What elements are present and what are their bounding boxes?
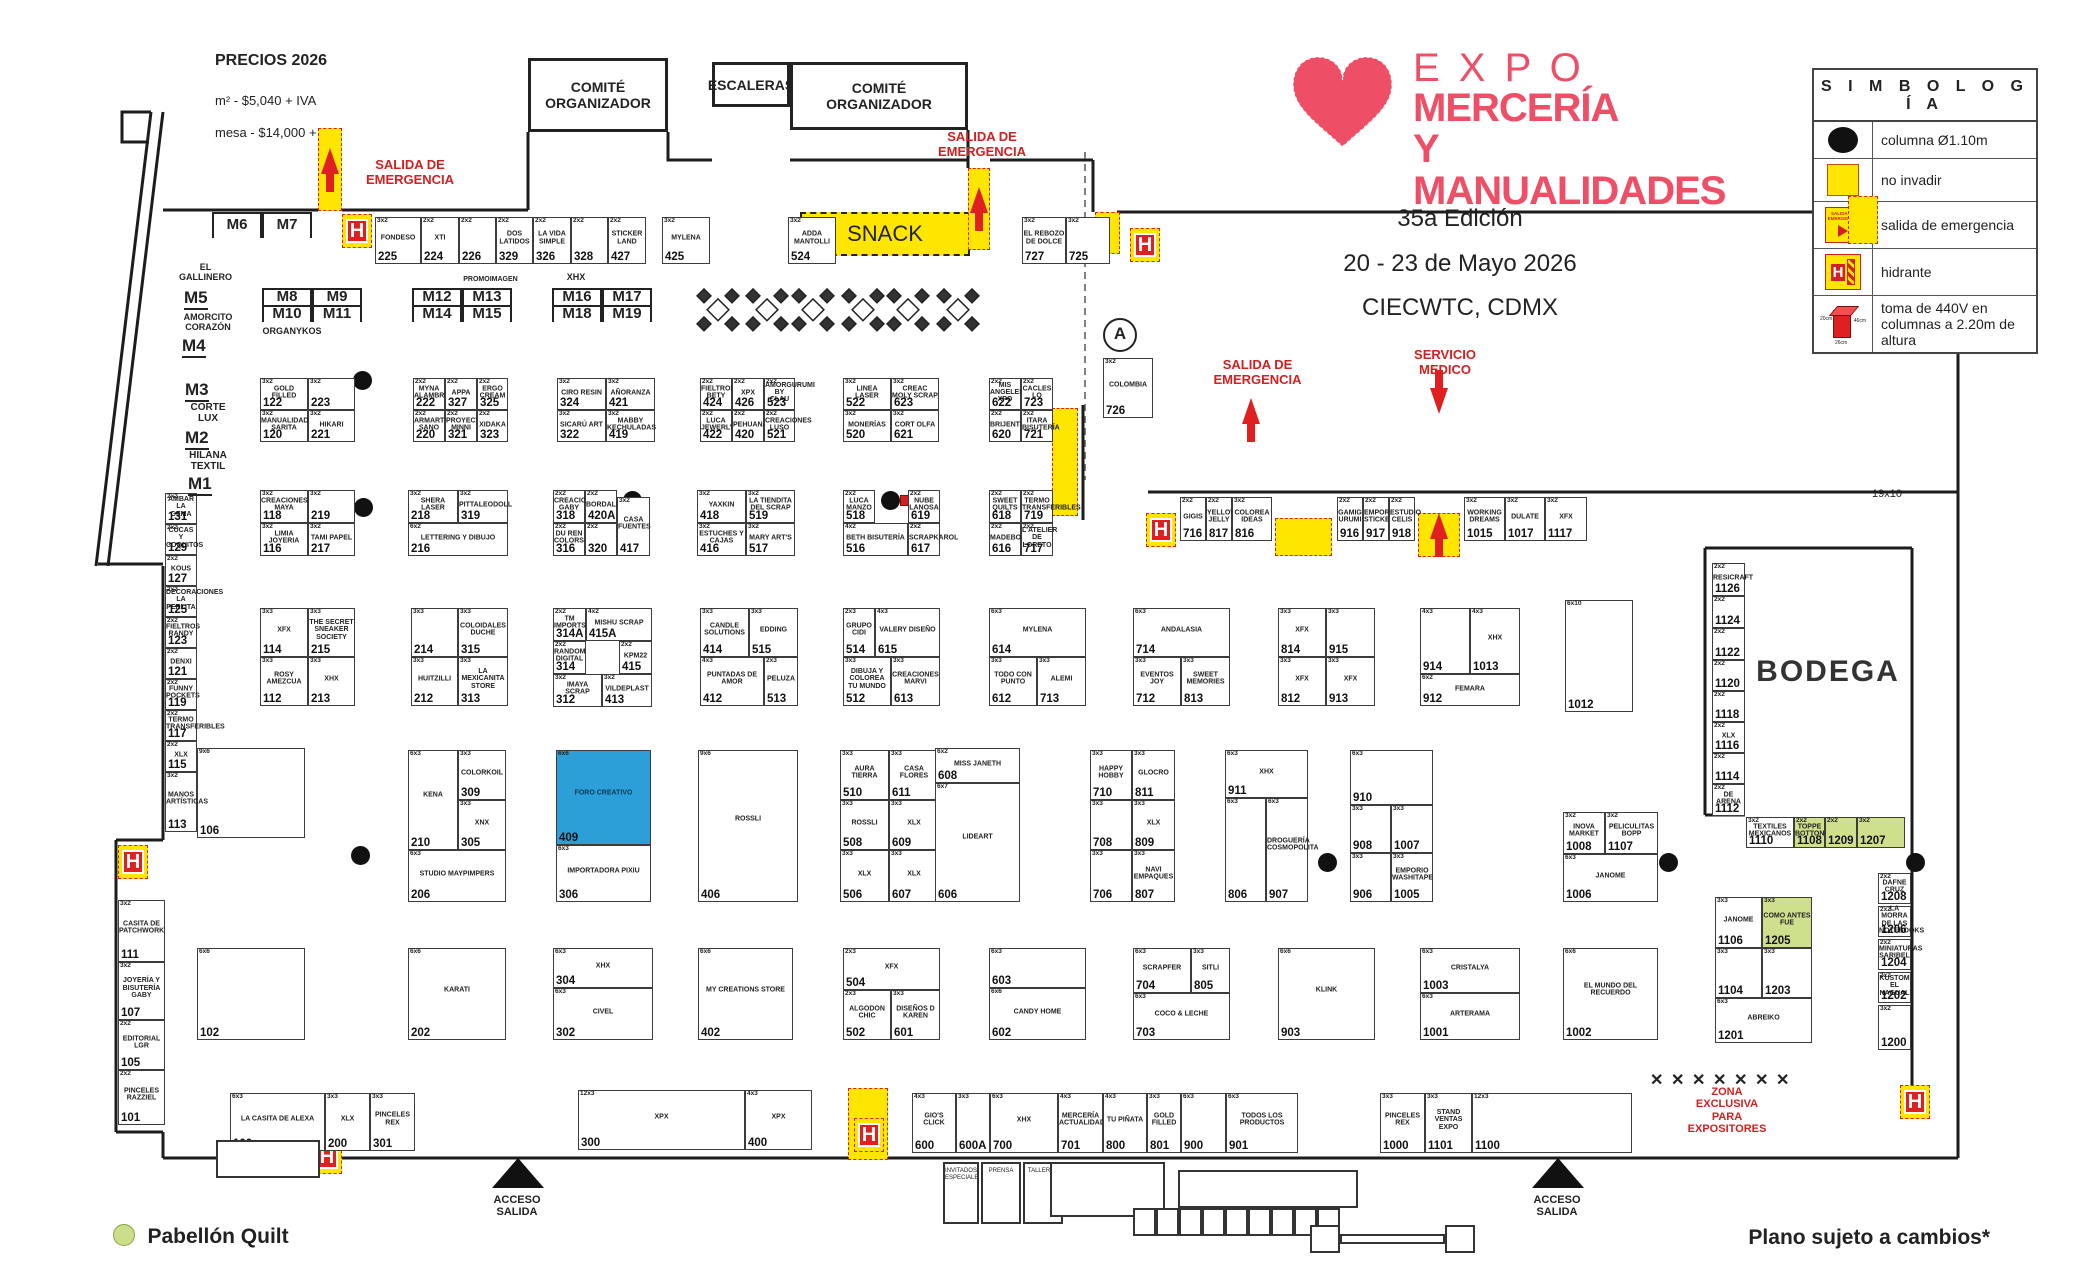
- booth-number: 523: [767, 398, 786, 410]
- booth-number: 613: [894, 694, 913, 706]
- booth-813: 3x3SWEET MEMORIES813: [1181, 657, 1230, 706]
- hydrant-letter: H: [1134, 233, 1156, 257]
- table-m8: M8: [262, 288, 312, 305]
- booth-number: 726: [1106, 406, 1125, 418]
- booth-number: 1015: [1467, 529, 1493, 541]
- booth-number: 708: [1093, 838, 1112, 850]
- booth-1203: 3x31203: [1762, 948, 1812, 998]
- booth-name: EDDING: [750, 626, 797, 633]
- booth-716: 2x2GIGIS716: [1180, 497, 1206, 541]
- booth-809: 3x3XLX809: [1132, 800, 1175, 850]
- booth-number: 621: [894, 430, 913, 442]
- booth-1204: 2x2MINIATURAS SARIBEL1204: [1878, 939, 1911, 970]
- booth-number: 603: [992, 976, 1011, 988]
- booth-number: 706: [1093, 890, 1112, 902]
- booth-number: 424: [703, 398, 722, 410]
- booth-125: 2x2DECORACIONES LA PERLITA125: [165, 586, 197, 617]
- booth-421: 3x2AÑORANZA421: [606, 378, 655, 410]
- booth-313: 3x3LA MEXICANITA STORE313: [458, 657, 508, 706]
- booth-number: 101: [121, 1113, 140, 1125]
- booth-number: 1107: [1608, 842, 1633, 854]
- booth-number: 710: [1093, 788, 1112, 800]
- booth-name: ARTERAMA: [1421, 1011, 1519, 1018]
- pabellon-quilt-label: Pabellón Quilt: [147, 1225, 288, 1248]
- booth-1114: 2x21114: [1712, 753, 1745, 784]
- booth-size: 3x2: [1466, 498, 1477, 505]
- x-table-icon: ✕: [1734, 1072, 1747, 1090]
- booth-1015: 3x2WORKING DREAMS1015: [1464, 497, 1505, 541]
- room-comité: COMITÉ ORGANIZADOR: [790, 62, 968, 130]
- booth-number: 1005: [1394, 890, 1420, 902]
- booth-number: 704: [1136, 981, 1155, 993]
- booth-119: 2x2FUNNY POCKETS119: [165, 679, 197, 710]
- booth-name: CIVEL: [554, 1008, 652, 1015]
- booth-326: 2x2LA VIDA SIMPLE326: [533, 217, 571, 264]
- booth-129: 2x2CUCAS Y COQUITOS129: [165, 524, 197, 555]
- booth-name: VALERY DISEÑO: [876, 626, 939, 633]
- booth-size: 6x3: [1268, 799, 1279, 806]
- booth-name: ROSSLI: [841, 819, 888, 826]
- booth-size: 3x3: [842, 801, 853, 808]
- booth-name: XPX: [746, 1113, 811, 1120]
- label-xhx: XHX: [556, 272, 596, 282]
- booth-number: 520: [846, 430, 865, 442]
- booth-number: 1203: [1765, 986, 1791, 998]
- booth-number: 619: [911, 511, 930, 523]
- booth-number: 329: [499, 252, 518, 264]
- booth-number: 412: [703, 694, 722, 706]
- booth-size: 6x3: [1135, 949, 1146, 956]
- booth-number: 912: [1423, 694, 1442, 706]
- booth-size: 3x3: [1183, 658, 1194, 665]
- booth-size: 3x2: [699, 524, 710, 531]
- booth-size: 3x3: [842, 751, 853, 758]
- table-m13: M13: [462, 288, 512, 305]
- booth-size: 2x2: [498, 218, 509, 225]
- booth-523: 2x2AMORGURUMI BY CLAU523: [764, 378, 795, 410]
- booth-size: 6x3: [558, 846, 569, 853]
- no-invadir-zone: [1848, 196, 1878, 244]
- booth-number: 513: [767, 694, 786, 706]
- pricing-line1: m² - $5,040 + IVA: [215, 94, 475, 109]
- wall-segment: [96, 112, 151, 566]
- booth-number: 809: [1135, 838, 1154, 850]
- booth-size: 3x3: [891, 751, 902, 758]
- x-table-icon: ✕: [1692, 1072, 1705, 1090]
- booth-name: XTI: [422, 235, 458, 242]
- booth-806: 6x3806: [1225, 798, 1266, 902]
- booth-214: 3x3214: [411, 608, 458, 657]
- booth-size: 3x3: [262, 609, 273, 616]
- booth-number: 214: [414, 645, 433, 657]
- booth-number: 801: [1150, 1141, 1169, 1153]
- booth-416: 3x2ESTUCHES Y CAJAS416: [697, 523, 746, 556]
- booth-name: YAXKIN: [698, 501, 745, 508]
- booth-number: 415: [622, 662, 641, 674]
- booth-number: 421: [609, 398, 628, 410]
- booth-name: CANDLE SOLUTIONS: [701, 623, 748, 638]
- booth-name: XIDAKA: [478, 421, 507, 428]
- column-icon: [1659, 853, 1678, 872]
- hydrant-icon: H: [1825, 254, 1861, 290]
- column-icon: [354, 498, 373, 517]
- booth-size: 3x2: [748, 491, 759, 498]
- booth-number: 112: [263, 694, 282, 706]
- booth-600A: 3x3600A: [956, 1093, 990, 1153]
- booth-name: DIBUJA Y COLOREA TU MUNDO: [844, 668, 890, 690]
- booth-number: 1106: [1718, 936, 1743, 948]
- booth-number: 217: [311, 544, 330, 556]
- booth-714: 6x3ANDALASIA714: [1133, 608, 1230, 657]
- booth-size: 2x2: [555, 642, 566, 649]
- label-salida-de: SALIDA DE EMERGENCIA: [360, 158, 460, 187]
- booth-814: 3x3XFX814: [1278, 608, 1326, 657]
- booth-117: 2x2TERMO TRANSFERIBLES117: [165, 710, 197, 741]
- booth-number: 816: [1235, 529, 1254, 541]
- booth-size: 3x3: [751, 609, 762, 616]
- booth-number: 1208: [1881, 892, 1907, 904]
- booth-name: BORDALE: [586, 501, 616, 508]
- booth-name: LA MEXICANITA STORE: [459, 668, 507, 690]
- booth-number: 218: [411, 511, 430, 523]
- booth-number: 606: [938, 890, 957, 902]
- booth-number: 102: [200, 1028, 219, 1040]
- booth-600: 4x3GIO'S CLICK600: [912, 1093, 956, 1153]
- label-salida-de: SALIDA DE EMERGENCIA: [922, 130, 1042, 159]
- booth-size: 3x3: [1135, 658, 1146, 665]
- booth-409: 6x6FORO CREATIVO409: [556, 750, 651, 845]
- booth-name: GIGIS: [1181, 513, 1205, 520]
- booth-number: 1206: [1881, 925, 1907, 937]
- booth-number: 811: [1135, 788, 1154, 800]
- booth-number: 1126: [1715, 584, 1740, 596]
- booth-1101: 3x3STAND VENTAS EXPO1101: [1425, 1093, 1472, 1153]
- booth-907: 6x3DROGUERÍA COSMOPOLITA907: [1266, 798, 1308, 902]
- booth-226: 2x2226: [459, 217, 496, 264]
- table-m10: M10: [262, 305, 312, 322]
- booth-427: 2x2STICKER LAND427: [608, 217, 646, 264]
- booth-size: 3x2: [377, 218, 388, 225]
- booth-name: JOYERÍA Y BISUTERÍA GABY: [119, 977, 164, 999]
- booth-300: 12x3XPX300: [578, 1090, 745, 1150]
- booth-212: 3x3HUITZILLI212: [411, 657, 458, 706]
- column-icon: [353, 371, 372, 390]
- booth-name: COLOMBIA: [1104, 381, 1152, 388]
- caja-cell: [1133, 1208, 1156, 1236]
- booth-number: 1205: [1765, 936, 1791, 948]
- booth-906: 3x3906: [1350, 853, 1391, 902]
- booth-916: 2x2GAMIG URUMI916: [1337, 497, 1363, 541]
- booth-size: 4x3: [877, 609, 888, 616]
- booth-1104: 3x31104: [1715, 948, 1762, 998]
- booth-609: 3x3XLX609: [889, 800, 939, 850]
- booth-size: 3x3: [1193, 949, 1204, 956]
- legend-text: hidrante: [1873, 260, 1940, 284]
- booth-number: 717: [1024, 544, 1043, 556]
- booth-number: 524: [791, 252, 810, 264]
- booth-number: 118: [263, 511, 282, 523]
- booth-size: 3x2: [1880, 1006, 1891, 1013]
- booth-size: 3x2: [559, 411, 570, 418]
- x-table-icon: ✕: [1713, 1072, 1726, 1090]
- booth-1100: 12x31100: [1472, 1093, 1632, 1153]
- booth-size: 2x2: [991, 411, 1002, 418]
- booth-size: 3x3: [460, 801, 471, 808]
- booth-number: 508: [843, 838, 862, 850]
- booth-320: 2x2320: [585, 523, 617, 556]
- hydrant-letter: H: [346, 219, 368, 243]
- booth-426: 2x2XPX426: [732, 378, 764, 410]
- booth-620: 2x2BRIJENTO620: [989, 410, 1021, 442]
- booth-1201: 6x3ABREIKO1201: [1715, 998, 1812, 1043]
- booth-size: 3x3: [460, 609, 471, 616]
- booth-name: JANOME: [1564, 872, 1657, 879]
- booth-number: 514: [846, 645, 865, 657]
- booth-306: 6x3IMPORTADORA PIXIU306: [556, 845, 651, 902]
- wall-segment: [108, 112, 163, 566]
- booth-number: 611: [892, 788, 911, 800]
- booth-1117: 3x2XFX1117: [1545, 497, 1587, 541]
- booth-817: 2x2YELLOW JELLY817: [1206, 497, 1232, 541]
- booth-305: 3x3XNX305: [458, 800, 506, 850]
- booth-size: 6x3: [410, 751, 421, 758]
- booth-1118: 2x21118: [1712, 691, 1745, 722]
- booth-329: 2x2DOS LATIDOS329: [496, 217, 533, 264]
- booth-611: 3x3CASA FLORES611: [889, 750, 939, 800]
- booth-912: 6x2FEMARA912: [1420, 674, 1520, 706]
- booth-319: 3x2PITTALEODOLL319: [458, 490, 508, 523]
- booth-314A: 2x2TM IMPORTS314A: [553, 608, 586, 641]
- booth-size: 3x2: [1234, 498, 1245, 505]
- booth-419: 3x2MABBY KECHULADAS419: [606, 410, 655, 442]
- booth-number: 1204: [1881, 958, 1907, 970]
- booth-811: 3x3GLOCRO811: [1132, 750, 1175, 800]
- booth-size: 3x2: [167, 773, 178, 780]
- booth-508: 3x3ROSSLI508: [840, 800, 889, 850]
- booth-size: 3x2: [559, 379, 570, 386]
- booth-name: ROSSLI: [699, 815, 797, 822]
- booth-size: 3x3: [991, 658, 1002, 665]
- booth-number: 900: [1184, 1141, 1203, 1153]
- legend-text: salida de emergencia: [1873, 213, 2022, 237]
- diamond-table-icon: [697, 289, 739, 331]
- booth-size: 6x10: [1567, 601, 1581, 608]
- booth-number: 326: [536, 252, 555, 264]
- booth-name: XLX: [326, 1116, 369, 1123]
- booth-618: 2x2SWEET QUILTS618: [989, 490, 1021, 523]
- booth-name: DENXI: [166, 658, 196, 665]
- booth-415: 2x2KPM22415: [619, 641, 652, 674]
- medical-arrow-icon: [1430, 388, 1448, 414]
- booth-number: 314: [556, 662, 575, 674]
- booth-name: CASA FLORES: [890, 765, 938, 780]
- booth-size: 3x3: [1134, 801, 1145, 808]
- booth-522: 3x2LINEA LASER522: [843, 378, 891, 410]
- booth-210: 6x3KENA210: [408, 750, 458, 850]
- booth-number: 813: [1184, 694, 1203, 706]
- booth-602: 6x6CANDY HOME602: [989, 988, 1086, 1040]
- booth-321: 2x2PROYECTO MINNI321: [445, 410, 477, 442]
- booth-name: STICKER LAND: [609, 231, 645, 246]
- booth-710: 3x3HAPPY HOBBY710: [1090, 750, 1132, 800]
- booth-1007: 3x31007: [1391, 805, 1433, 853]
- booth-size: 3x2: [310, 491, 321, 498]
- booth-size: 2x2: [120, 1021, 131, 1028]
- booth-name: ABREIKO: [1716, 1015, 1811, 1022]
- booth-1003: 6x3CRISTALYA1003: [1420, 948, 1520, 993]
- booth-size: 2x2: [610, 218, 621, 225]
- booth-116: 3x2LIMIA JOYERIA116: [260, 523, 308, 556]
- booth-807: 3x3NAVI EMPAQUES807: [1132, 850, 1175, 902]
- caja-cell: [1156, 1208, 1179, 1236]
- wall-segment: [668, 132, 712, 160]
- booth-413: 3x2VILDEPLAST413: [602, 674, 652, 707]
- label-m2: M2: [185, 428, 209, 450]
- booth-name: XHX: [1471, 634, 1519, 641]
- booth-size: 3x2: [619, 498, 630, 505]
- booth-number: 413: [605, 695, 624, 707]
- booth-size: 3x3: [310, 658, 321, 665]
- booth-name: KLINK: [1279, 986, 1374, 993]
- booth-913: 3x3XFX913: [1326, 657, 1375, 706]
- booth-name: COLOREA IDEAS: [1233, 510, 1271, 525]
- hydrant-icon: H: [1900, 1085, 1930, 1119]
- booth-number: 419: [609, 430, 628, 442]
- booth-number: 301: [373, 1139, 392, 1151]
- booth-name: CASA FUENTES: [618, 516, 649, 531]
- booth-number: 620: [992, 430, 1011, 442]
- booth-size: 2x2: [1714, 564, 1725, 571]
- booth-name: XFX: [844, 963, 939, 970]
- booth-607: 3x3XLX607: [889, 850, 939, 902]
- booth-number: 617: [911, 544, 930, 556]
- booth-721: 2x2ITARA BISUTERÍA721: [1021, 410, 1053, 442]
- booth-name: JANOME: [1716, 916, 1761, 923]
- table-m11: M11: [312, 305, 362, 322]
- booth-name: SICARÚ ART: [558, 421, 605, 428]
- booth-name: BETH BISUTERÍA: [844, 534, 907, 541]
- booth-number: 212: [414, 694, 433, 706]
- booth-621: 3x2CORT OLFA621: [891, 410, 939, 442]
- column-icon: [1906, 853, 1925, 872]
- booth-name: DULATE: [1506, 513, 1544, 520]
- table-m18: M18: [552, 305, 602, 322]
- booth-number: 426: [735, 398, 754, 410]
- booth-713: 3x3ALEMI713: [1037, 657, 1086, 706]
- booth-number: 1104: [1718, 986, 1743, 998]
- booth-name: CRISTALYA: [1421, 965, 1519, 972]
- booth-size: 3x3: [1764, 898, 1775, 905]
- booth-name: EL MUNDO DEL RECUERDO: [1564, 982, 1657, 997]
- booth-number: 600: [915, 1141, 934, 1153]
- booth-name: PINCELES RAZZIEL: [119, 1088, 164, 1103]
- booth-number: 1202: [1881, 991, 1907, 1003]
- pabellon-quilt-key: Pabellón Quilt: [113, 1224, 289, 1249]
- booth-1000: 3x3PINCELES REX1000: [1380, 1093, 1425, 1153]
- booth-size: 2x2: [120, 1071, 131, 1078]
- booth-size: 4x3: [1422, 609, 1433, 616]
- floor-plan: PRECIOS 2026 m² - $5,040 + IVA mesa - $1…: [0, 0, 2100, 1275]
- booth-name: XLX: [890, 819, 938, 826]
- booth-size: 3x3: [1092, 851, 1103, 858]
- booth-number: 725: [1069, 252, 1088, 264]
- booth-601: 3x3DISEÑOS D KAREN601: [891, 990, 940, 1040]
- label-m1: M1: [188, 474, 212, 496]
- x-table-icon: ✕: [1650, 1072, 1663, 1090]
- booth-number: 316: [556, 544, 575, 556]
- booth-301: 3x3PINCELES REX301: [370, 1093, 415, 1151]
- booth-number: 701: [1061, 1141, 1080, 1153]
- booth-417: 3x2CASA FUENTES417: [617, 497, 650, 556]
- booth-name: XLX: [166, 751, 196, 758]
- booth-size: 6x3: [1352, 751, 1363, 758]
- booth-number: 402: [701, 1028, 720, 1040]
- booth-220: 2x2ARMARTE SANO220: [413, 410, 445, 442]
- label-acceso: ACCESO SALIDA: [482, 1194, 552, 1219]
- booth-701: 4x3MERCERÍA ACTUALIDAD701: [1058, 1093, 1103, 1153]
- booth-size: 6x3: [410, 851, 421, 858]
- booth-number: 127: [168, 574, 187, 586]
- booth-size: 3x3: [1149, 1094, 1160, 1101]
- booth-size: 3x3: [262, 658, 273, 665]
- no-invadir-zone: [1275, 518, 1332, 556]
- booth-name: DOS LATIDOS: [497, 231, 532, 246]
- booth-size: 3x2: [699, 491, 710, 498]
- booth-number: 125: [168, 605, 187, 617]
- booth-504: 2x3XFX504: [843, 948, 940, 990]
- booth-623: 3x2CREAC MOLY SCRAP623: [891, 378, 939, 410]
- booth-number: 306: [559, 890, 578, 902]
- booth-number: 805: [1194, 981, 1213, 993]
- booth-name: EMPORI STICKERS: [1364, 510, 1388, 525]
- booth-size: 3x3: [1764, 949, 1775, 956]
- booth-size: 6x3: [555, 989, 566, 996]
- booth-name: HUITZILLI: [412, 675, 457, 682]
- booth-number: 309: [461, 788, 480, 800]
- table-m15: M15: [462, 305, 512, 322]
- booth-521: 2x2CREACIONES LUSO521: [764, 410, 795, 442]
- booth-number: 313: [461, 694, 480, 706]
- booth-size: 3x3: [413, 658, 424, 665]
- booth-size: 3x2: [1068, 218, 1079, 225]
- booth-size: 4x3: [914, 1094, 925, 1101]
- booth-name: TAMI PAPEL: [309, 534, 354, 541]
- booth-number: 420: [735, 430, 754, 442]
- label-m3: M3: [185, 380, 209, 402]
- booth-number: 116: [263, 544, 282, 556]
- booth-number: 220: [416, 430, 435, 442]
- booth-1120: 2x21120: [1712, 660, 1745, 691]
- booth-size: 3x3: [1092, 801, 1103, 808]
- booth-size: 3x3: [893, 991, 904, 998]
- booth-size: 6x3: [555, 949, 566, 956]
- booth-size: 3x3: [1039, 658, 1050, 665]
- booth-number: 607: [892, 890, 911, 902]
- hydrant-icon: H: [118, 845, 148, 879]
- booth-name: KENA: [409, 791, 457, 798]
- booth-number: 113: [168, 820, 187, 832]
- booth-size: 2x3: [845, 991, 856, 998]
- booth-914: 4x3914: [1420, 608, 1470, 674]
- booth-number: 721: [1024, 430, 1043, 442]
- booth-number: 312: [556, 695, 575, 707]
- column-icon: [1828, 127, 1858, 153]
- booth-name: ADDA MANTOLLI: [789, 231, 835, 246]
- booth-name: GIO'S CLICK: [913, 1113, 955, 1128]
- booth-name: COLORKOIL: [459, 769, 505, 776]
- booth-name: TU PIÑATA: [1104, 1116, 1146, 1123]
- venue: CIECWTC, CDMX: [1300, 295, 1620, 322]
